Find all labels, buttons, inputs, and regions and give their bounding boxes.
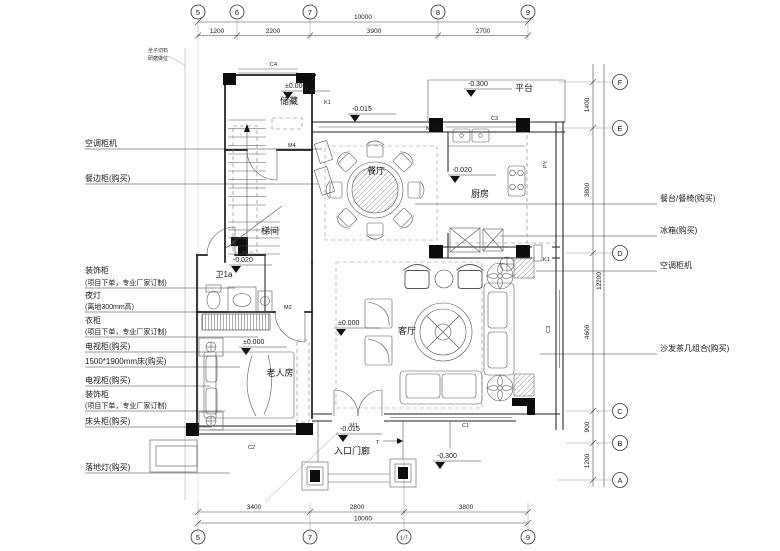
bottom-seg-dim: 2800 [350, 504, 365, 511]
svg-text:装饰柜: 装饰柜 [85, 265, 109, 275]
grid-bubble-right-D: D [617, 249, 623, 258]
bathroom-fixtures [206, 285, 272, 312]
grid-bubble-right-C: C [617, 407, 623, 416]
svg-text:冰箱(购买): 冰箱(购买) [660, 225, 698, 235]
top-dimension-bar: 10000 1200 2200 3900 2700 5 6 7 8 9 [191, 5, 535, 39]
svg-text:-0.020: -0.020 [233, 257, 253, 264]
kitchen-fixtures [448, 129, 556, 261]
right-annotations: 餐台/餐椅(购买) 冰箱(购买) 空调柜机 沙发茶几组合(购买) [415, 193, 730, 354]
level-marker: -0.020 [448, 167, 496, 183]
right-dimension-bar: 1400 3800 4600 900 1200 12200 F E D C B … [558, 64, 628, 488]
bottom-total-dim: 10000 [354, 516, 372, 523]
svg-text:装饰柜: 装饰柜 [85, 389, 109, 399]
code-c1: C1 [462, 423, 469, 429]
grid-bubble-top-9: 9 [526, 8, 530, 17]
code-c3-right: C3 [546, 326, 552, 333]
code-mc1: MC1 [426, 126, 438, 132]
right-label: 沙发茶几组合(购买) [540, 343, 730, 354]
code-m4: M4 [288, 143, 296, 149]
right-label: 空调柜机 [536, 260, 692, 271]
code-c3-top: C3 [491, 116, 498, 122]
svg-text:床头柜(购买): 床头柜(购买) [85, 416, 131, 426]
right-label: 餐台/餐椅(购买) [415, 193, 716, 204]
level-marker: ±0.000 [239, 339, 287, 355]
svg-text:沙发茶几组合(购买): 沙发茶几组合(购买) [660, 343, 730, 353]
svg-text:(项目下单，专业厂家订制): (项目下单，专业厂家订制) [85, 401, 167, 410]
level-marker: -0.015 [348, 106, 396, 122]
wardrobe [202, 314, 270, 330]
room-label-living: 客厅 [398, 325, 416, 336]
left-label: 电视柜(购买) [85, 375, 210, 386]
structural-columns [186, 73, 535, 436]
grid-bubble-bottom-9: 9 [526, 533, 530, 542]
grid-bubble-bottom-5: 5 [196, 533, 200, 542]
svg-text:±0.000: ±0.000 [285, 83, 306, 90]
top-seg-dim: 1200 [210, 28, 225, 35]
room-label-porch: 入口门廊 [334, 445, 370, 456]
right-seg-dim: 1200 [584, 453, 591, 468]
grid-bubble-bottom-1-7: 1/7 [400, 535, 408, 541]
elder-bedroom-furniture [199, 338, 309, 430]
grid-bubble-top-8: 8 [436, 8, 440, 17]
top-seg-dim: 2200 [266, 28, 281, 35]
level-marker: -0.300 [433, 453, 481, 469]
svg-text:落地灯(购买): 落地灯(购买) [85, 462, 131, 472]
svg-text:-0.015: -0.015 [352, 106, 372, 113]
grid-bubble-right-A: A [617, 476, 622, 485]
room-label-platform: 平台 [515, 82, 533, 93]
tiny-note: 全子切石 研磨做位 [148, 47, 185, 66]
level-marker: ±0.000 [334, 320, 380, 336]
svg-text:空调柜机: 空调柜机 [660, 260, 692, 270]
living-room-furniture [336, 257, 534, 408]
code-k1-top: K1 [324, 100, 331, 106]
left-label: 装饰柜 (项目下单，专业厂家订制) [85, 265, 235, 288]
left-label: 夜灯 (离地300mm高) [85, 290, 215, 312]
svg-text:餐边柜(购买): 餐边柜(购买) [85, 173, 131, 183]
right-seg-dim: 3800 [584, 182, 591, 197]
left-label: 落地灯(购买) [85, 462, 230, 473]
code-t: T [376, 440, 380, 446]
bottom-dimension-bar: 3400 2800 3800 10000 5 7 1/7 9 [191, 504, 535, 544]
svg-text:-0.300: -0.300 [468, 81, 488, 88]
floorplan-page: 10000 1200 2200 3900 2700 5 6 7 8 9 3400… [0, 0, 780, 551]
code-c4: C4 [270, 62, 277, 68]
right-seg-dim: 1400 [584, 97, 591, 112]
room-label-dining: 餐厅 [367, 165, 385, 176]
svg-text:(离地300mm高): (离地300mm高) [85, 302, 134, 311]
room-labels: 储藏 平台 餐厅 厨房 梯间 卫1a 客厅 老人房 入口门廊 [216, 82, 533, 456]
grid-bubble-right-F: F [618, 78, 623, 87]
svg-text:(项目下单，专业厂家订制): (项目下单，专业厂家订制) [85, 327, 167, 336]
code-py: PY [543, 160, 549, 168]
room-label-stair: 梯间 [261, 225, 279, 236]
grid-bubble-top-5: 5 [196, 8, 200, 17]
svg-text:全子切石: 全子切石 [148, 47, 168, 54]
svg-text:电视柜(购买): 电视柜(购买) [85, 341, 131, 351]
level-markers: ±0.000 -0.300 -0.015 -0.020 -0.020 ±0.00… [229, 81, 512, 469]
grid-bubble-bottom-7: 7 [308, 533, 312, 542]
svg-text:研磨做位: 研磨做位 [148, 55, 168, 62]
svg-text:餐台/餐椅(购买): 餐台/餐椅(购买) [660, 193, 716, 203]
code-m2: M2 [284, 305, 292, 311]
svg-text:-0.300: -0.300 [437, 453, 457, 460]
right-total-dim: 12200 [596, 272, 603, 290]
svg-text:±0.000: ±0.000 [243, 339, 264, 346]
room-label-bath: 卫1a [216, 270, 233, 279]
svg-text:(项目下单，专业厂家订制): (项目下单，专业厂家订制) [85, 278, 167, 287]
top-total-dim: 10000 [354, 14, 372, 21]
code-k1-right: K1 [543, 257, 550, 263]
grid-bubble-top-7: 7 [308, 8, 312, 17]
svg-text:空调柜机: 空调柜机 [85, 138, 117, 148]
top-seg-dim: 2700 [476, 28, 491, 35]
grid-bubble-top-6: 6 [235, 8, 239, 17]
svg-text:±0.000: ±0.000 [338, 320, 359, 327]
grid-bubble-right-E: E [617, 124, 622, 133]
left-label: 电视柜(购买) [85, 341, 210, 352]
top-seg-dim: 3900 [367, 28, 382, 35]
right-seg-dim: 4600 [584, 324, 591, 339]
room-label-kitchen: 厨房 [471, 188, 489, 199]
svg-text:衣柜: 衣柜 [85, 315, 101, 325]
code-m1: M1 [350, 423, 358, 429]
svg-text:夜灯: 夜灯 [85, 290, 101, 300]
svg-text:1500*1900mm床(购买): 1500*1900mm床(购买) [85, 356, 167, 366]
room-label-elder: 老人房 [266, 367, 293, 378]
bottom-seg-dim: 3400 [247, 504, 262, 511]
code-c2: C2 [248, 445, 255, 451]
level-marker: -0.300 [464, 81, 512, 97]
left-label: 餐边柜(购买) [85, 173, 318, 184]
dining-table-set [272, 118, 437, 240]
right-label: 冰箱(购买) [500, 225, 698, 236]
level-marker: ±0.000 [281, 83, 330, 99]
grid-bubble-right-B: B [617, 439, 622, 448]
svg-text:电视柜(购买): 电视柜(购买) [85, 375, 131, 385]
right-seg-dim: 900 [584, 421, 591, 432]
floorplan-drawing: 10000 1200 2200 3900 2700 5 6 7 8 9 3400… [0, 0, 780, 551]
left-label: 空调柜机 [85, 138, 322, 149]
bottom-seg-dim: 3800 [459, 504, 474, 511]
level-marker: -0.020 [229, 257, 272, 273]
svg-text:-0.020: -0.020 [452, 167, 472, 174]
